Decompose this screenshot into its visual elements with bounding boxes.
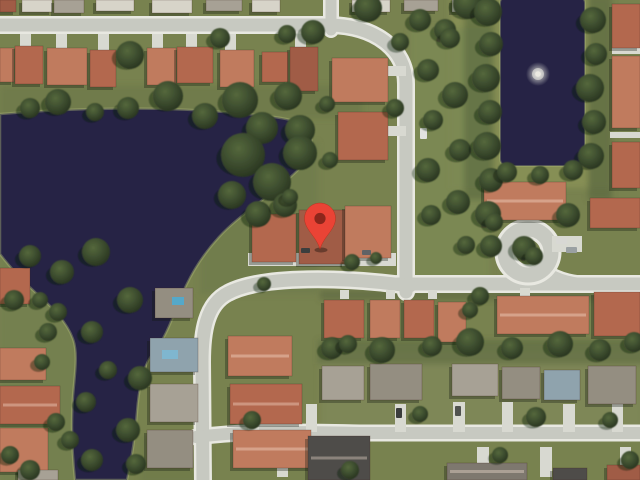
house-roof (0, 0, 16, 12)
tree (556, 203, 580, 227)
tree (257, 277, 271, 291)
house-roof (147, 430, 193, 468)
car (566, 247, 577, 253)
tree (479, 32, 503, 56)
tree (370, 252, 382, 264)
tree (421, 205, 441, 225)
tree (116, 41, 144, 69)
tree (422, 336, 442, 356)
tree (621, 451, 639, 469)
tree (417, 59, 439, 81)
tree (301, 20, 325, 44)
tree (409, 9, 431, 31)
tree (126, 454, 146, 474)
house-roof (322, 366, 364, 400)
house-roof (22, 0, 52, 12)
tree (34, 354, 50, 370)
tree (416, 158, 440, 182)
tree (369, 337, 395, 363)
tree (1, 446, 19, 464)
tree (580, 7, 606, 33)
tree (449, 139, 471, 161)
tree (497, 162, 517, 182)
house-roof (332, 58, 388, 102)
car (301, 248, 310, 253)
house-roof (152, 0, 192, 13)
house-roof (612, 142, 640, 188)
car (396, 408, 402, 418)
house-roof (553, 468, 587, 480)
tree (319, 96, 335, 112)
tree (32, 292, 48, 308)
tree (501, 337, 523, 359)
tree (49, 303, 67, 321)
tree (589, 339, 611, 361)
tree (19, 245, 41, 267)
house-roof (54, 0, 84, 13)
tree (525, 247, 543, 265)
marker-shadow (315, 248, 328, 253)
tree (61, 431, 79, 449)
tree (76, 392, 96, 412)
map-viewport[interactable] (0, 0, 640, 480)
tree (344, 254, 360, 270)
tree (81, 449, 103, 471)
tree (446, 190, 470, 214)
car (362, 250, 371, 255)
tree (81, 321, 103, 343)
house-roof (338, 112, 388, 160)
tree (578, 143, 604, 169)
house-roof (252, 0, 280, 12)
tree (210, 28, 230, 48)
satellite-map[interactable] (0, 0, 640, 480)
house-roof (150, 384, 198, 422)
tree (423, 110, 443, 130)
tree (45, 89, 71, 115)
house-roof (15, 46, 43, 84)
pool (172, 297, 184, 305)
tree (117, 97, 139, 119)
house-roof (594, 292, 640, 336)
tree (283, 136, 317, 170)
house-roof (588, 366, 636, 404)
house-roof (206, 0, 242, 11)
tree (20, 460, 40, 480)
tree (582, 110, 606, 134)
house-roof (612, 56, 640, 128)
tree (243, 411, 261, 429)
tree (485, 213, 503, 231)
tree (339, 335, 357, 353)
tree (222, 82, 258, 118)
tree (440, 28, 460, 48)
tree (99, 361, 117, 379)
tree (20, 98, 40, 118)
house-roof (370, 364, 422, 400)
house-roof (544, 370, 580, 400)
house-roof (612, 4, 640, 48)
tree (480, 235, 502, 257)
tree (341, 461, 359, 479)
fountain-icon (526, 62, 550, 86)
house-roof (404, 300, 434, 338)
tree (478, 100, 502, 124)
house-roof (324, 300, 364, 338)
car (556, 238, 567, 244)
tree (278, 25, 296, 43)
tree (526, 407, 546, 427)
house-roof (90, 50, 116, 87)
tree (274, 82, 302, 110)
house-roof (147, 48, 176, 85)
tree (585, 43, 607, 65)
tree (128, 366, 152, 390)
tree (245, 201, 271, 227)
tree (82, 238, 110, 266)
house-roof (47, 48, 87, 85)
tree (531, 166, 549, 184)
house-roof (0, 48, 14, 82)
tree (386, 99, 404, 117)
tree (456, 328, 484, 356)
tree (218, 181, 246, 209)
tree (472, 64, 500, 92)
car (455, 406, 461, 416)
house-roof (262, 52, 288, 82)
tree (50, 260, 74, 284)
tree (576, 74, 604, 102)
house-roof (177, 47, 213, 83)
location-marker-dot (314, 213, 325, 224)
tree (391, 33, 409, 51)
tree (547, 331, 573, 357)
tree (563, 160, 583, 180)
tree (322, 152, 338, 168)
tree (86, 103, 104, 121)
tree (471, 287, 489, 305)
tree (39, 323, 57, 341)
tree (117, 287, 143, 313)
house-roof (220, 50, 254, 87)
tree (457, 236, 475, 254)
tree (462, 302, 478, 318)
tree (192, 103, 218, 129)
house-roof (96, 0, 134, 11)
tree (153, 81, 183, 111)
tree (473, 132, 501, 160)
house-roof (370, 300, 400, 338)
tree (47, 413, 65, 431)
house-roof (452, 364, 498, 396)
tree (4, 290, 24, 310)
tree (282, 189, 298, 205)
house-roof (590, 198, 640, 228)
tree (442, 82, 468, 108)
pool (162, 350, 178, 359)
tree (116, 418, 140, 442)
tree (412, 406, 428, 422)
house-roof (502, 367, 540, 399)
tree (492, 447, 508, 463)
tree (602, 412, 618, 428)
